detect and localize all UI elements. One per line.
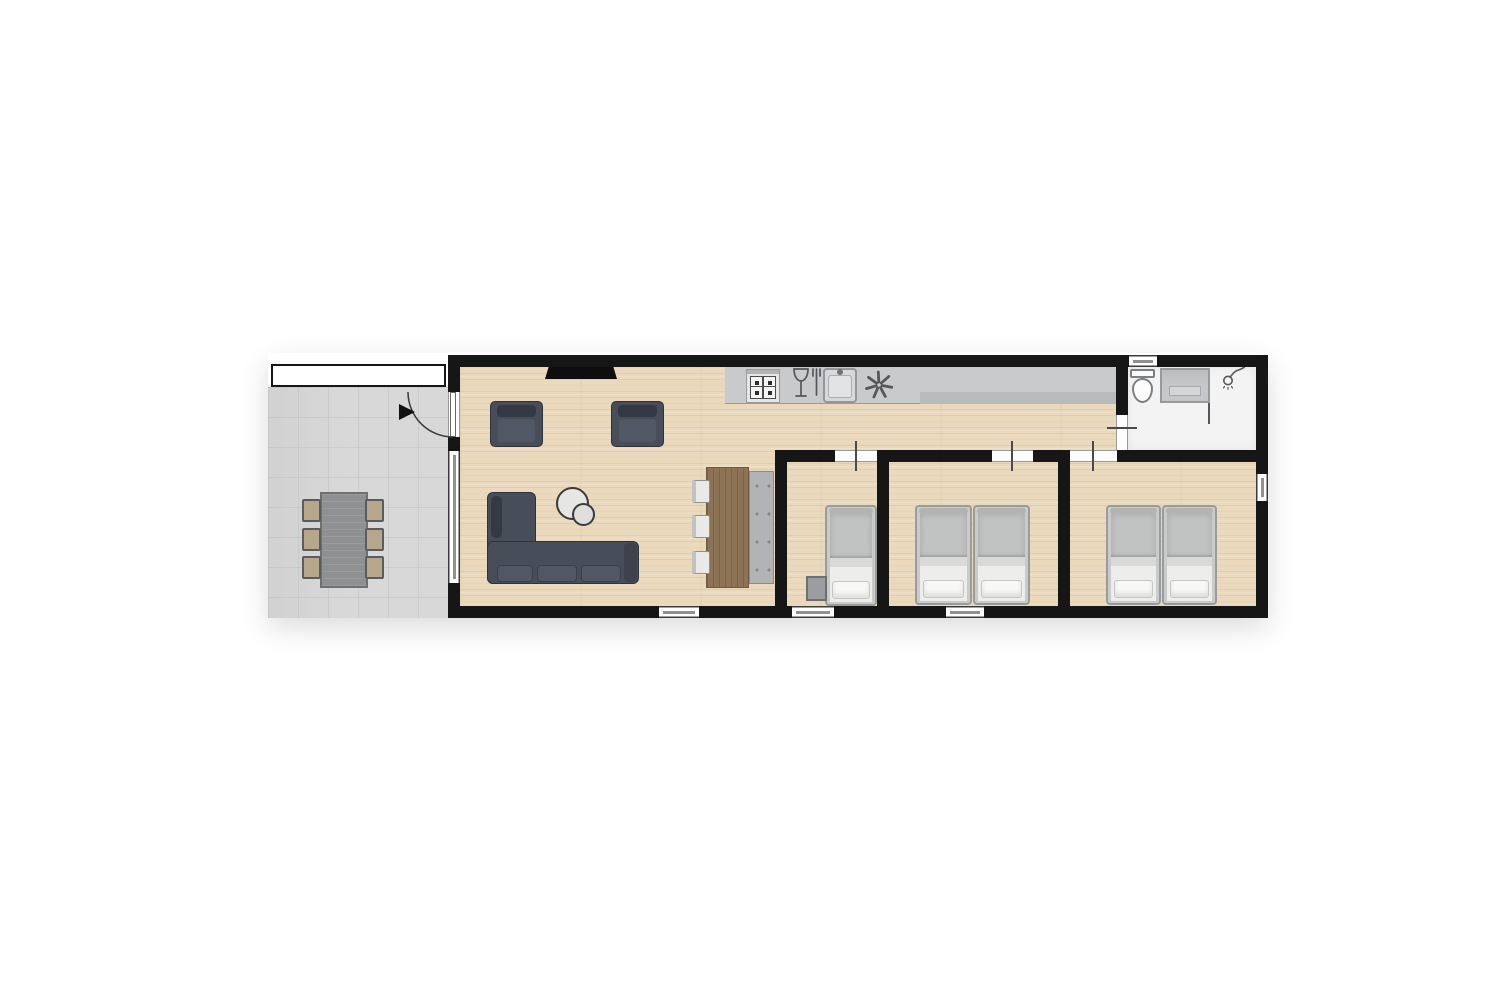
toilet-icon <box>1130 369 1155 378</box>
shower-partition <box>1208 403 1210 424</box>
wall-segment <box>988 606 1268 618</box>
dining-chair <box>692 515 710 538</box>
floor-plan-canvas <box>0 0 1500 1000</box>
outdoor-chair <box>302 499 321 522</box>
entrance-arrow-icon <box>399 404 415 420</box>
tv <box>545 367 617 379</box>
sofa-cushion <box>581 565 621 582</box>
dining-table <box>706 467 749 588</box>
sofa-cushion <box>537 565 577 582</box>
shower-tray <box>1160 368 1210 403</box>
stove-burner <box>763 386 776 399</box>
sink-tap <box>837 369 843 375</box>
outdoor-chair <box>302 556 321 579</box>
sink-icon <box>823 368 857 403</box>
wall-segment <box>1117 450 1256 462</box>
outdoor-dining-table <box>320 492 368 588</box>
outdoor-chair <box>365 499 384 522</box>
wall-segment <box>1256 355 1268 470</box>
armchair <box>490 401 543 447</box>
window <box>1256 470 1268 505</box>
armchair <box>611 401 664 447</box>
stove-control-strip <box>747 370 779 374</box>
window <box>655 606 703 618</box>
door-tick-mark <box>1011 441 1013 471</box>
nightstand <box>806 576 827 601</box>
single-bed <box>825 505 877 606</box>
stove-burner <box>750 386 763 399</box>
wall-segment <box>1161 355 1268 367</box>
dining-chair <box>692 480 710 503</box>
wall-segment <box>448 606 655 618</box>
wall-segment <box>448 587 460 618</box>
single-bed <box>1106 505 1161 605</box>
sofa-bolster-cushion <box>491 496 502 538</box>
door-tick-mark <box>855 441 857 471</box>
wall-segment <box>877 450 992 462</box>
door-tick-mark <box>1107 427 1137 429</box>
extractor-fan-icon <box>862 368 896 402</box>
single-bed <box>1162 505 1217 605</box>
wall-segment <box>1058 450 1070 606</box>
outdoor-chair <box>365 556 384 579</box>
bathroom-door-opening <box>1116 415 1128 450</box>
single-bed <box>973 505 1030 605</box>
wall-segment <box>877 450 889 606</box>
wall-segment <box>1256 505 1268 618</box>
sofa-cushion <box>497 565 533 582</box>
door-tick-mark <box>1092 441 1094 471</box>
outdoor-chair <box>302 528 321 551</box>
outdoor-chair <box>365 528 384 551</box>
wall-segment <box>703 606 788 618</box>
wall-segment <box>775 450 787 606</box>
window <box>942 606 988 618</box>
terrace-canopy <box>271 364 446 387</box>
round-side-table-small <box>572 503 595 526</box>
dining-bench <box>749 471 774 584</box>
dishwasher-icon <box>791 366 823 402</box>
window <box>788 606 838 618</box>
dining-chair <box>692 551 710 574</box>
single-bed <box>915 505 972 605</box>
left-window <box>448 447 460 587</box>
wall-segment <box>838 606 942 618</box>
sink-bowl <box>828 375 852 398</box>
sofa-armrest <box>624 543 637 582</box>
kitchen-counter-edge <box>920 392 1116 404</box>
stove-icon <box>746 369 780 403</box>
wall-segment <box>448 355 1125 367</box>
window <box>1125 355 1161 367</box>
